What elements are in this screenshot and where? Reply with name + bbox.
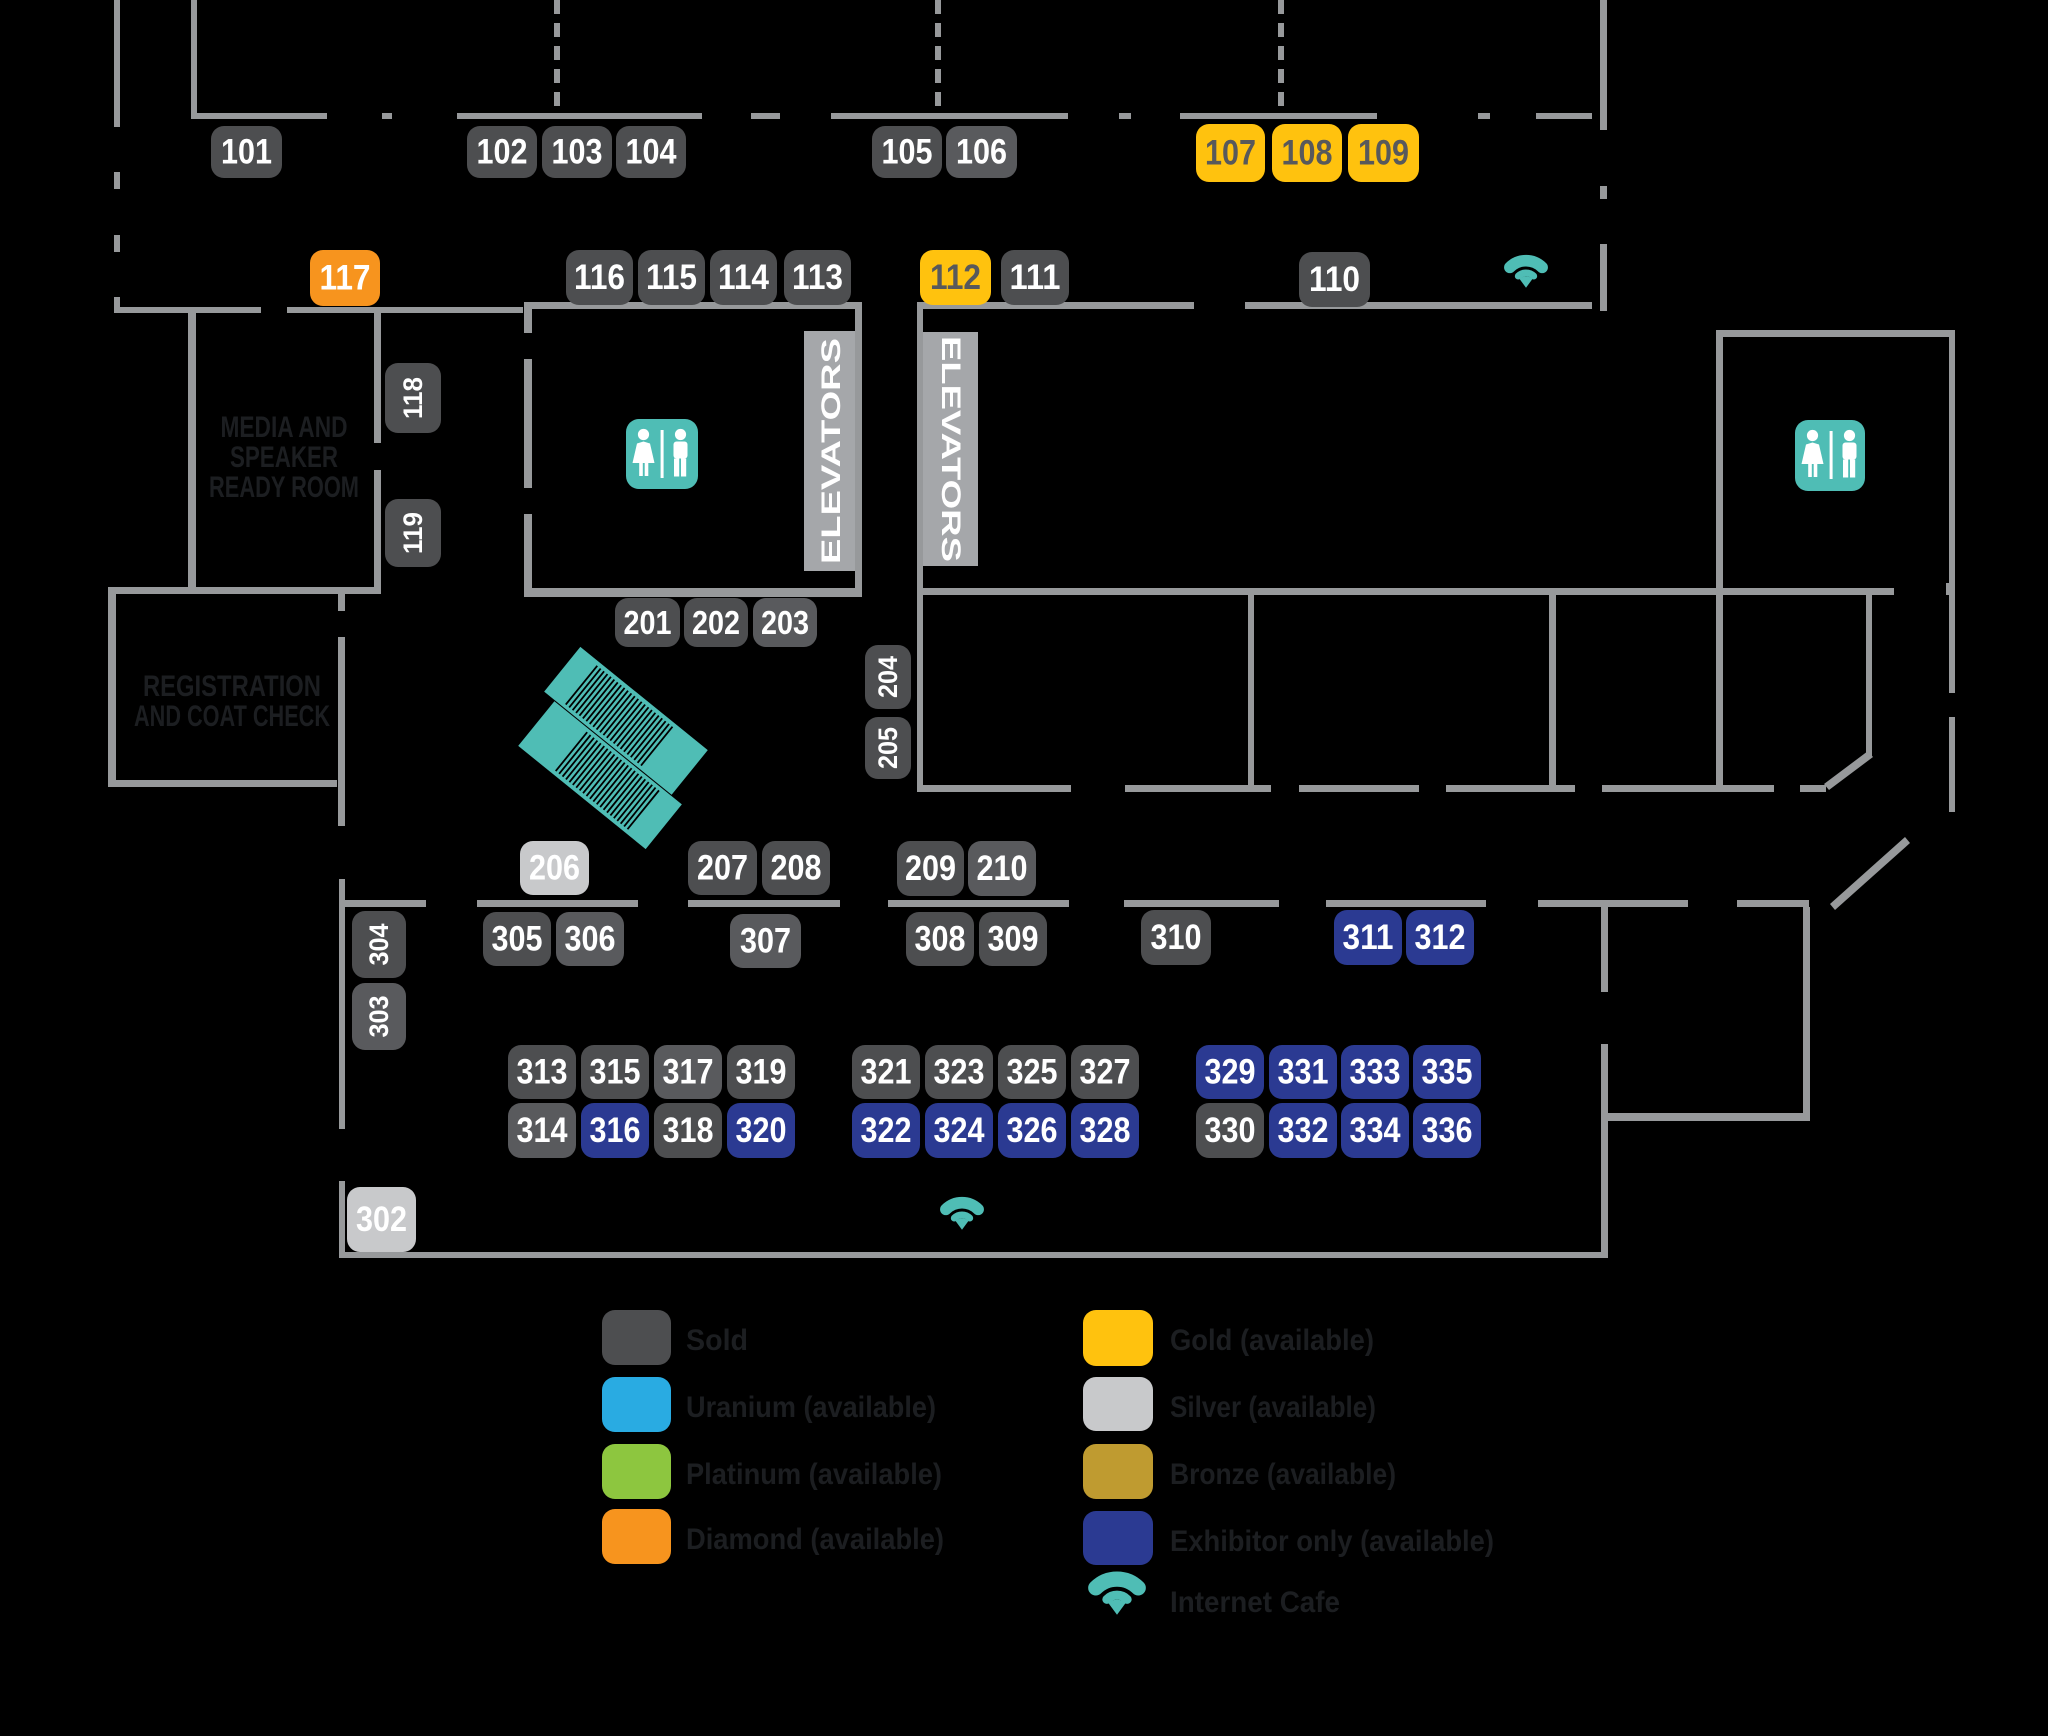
- svg-text:305: 305: [492, 920, 543, 959]
- svg-text:312: 312: [1415, 918, 1466, 957]
- svg-text:309: 309: [988, 920, 1039, 959]
- svg-text:106: 106: [956, 133, 1007, 172]
- svg-text:Diamond (available): Diamond (available): [686, 1523, 944, 1556]
- svg-text:Bronze (available): Bronze (available): [1170, 1458, 1396, 1491]
- svg-text:Silver (available): Silver (available): [1170, 1391, 1376, 1424]
- svg-text:201: 201: [624, 604, 672, 641]
- svg-text:326: 326: [1007, 1111, 1058, 1150]
- svg-text:317: 317: [663, 1053, 714, 1092]
- svg-text:Sold: Sold: [686, 1324, 748, 1357]
- svg-text:104: 104: [626, 133, 677, 172]
- svg-text:303: 303: [364, 996, 394, 1038]
- svg-text:115: 115: [646, 258, 697, 297]
- svg-text:302: 302: [356, 1200, 407, 1239]
- svg-text:101: 101: [221, 133, 272, 172]
- svg-text:313: 313: [517, 1053, 568, 1092]
- svg-text:308: 308: [915, 920, 966, 959]
- svg-text:203: 203: [761, 604, 809, 641]
- svg-text:117: 117: [320, 259, 371, 298]
- svg-text:207: 207: [697, 849, 748, 888]
- svg-text:109: 109: [1358, 134, 1409, 173]
- svg-text:READY ROOM: READY ROOM: [209, 471, 359, 504]
- svg-text:116: 116: [574, 258, 625, 297]
- svg-text:103: 103: [552, 133, 603, 172]
- svg-text:320: 320: [736, 1111, 787, 1150]
- svg-text:323: 323: [934, 1053, 985, 1092]
- svg-text:324: 324: [934, 1111, 985, 1150]
- svg-text:316: 316: [590, 1111, 641, 1150]
- svg-text:113: 113: [792, 258, 843, 297]
- svg-text:209: 209: [905, 849, 956, 888]
- svg-text:105: 105: [882, 133, 933, 172]
- svg-text:107: 107: [1205, 134, 1256, 173]
- svg-text:315: 315: [590, 1053, 641, 1092]
- svg-text:Exhibitor only (available): Exhibitor only (available): [1170, 1525, 1494, 1558]
- svg-text:304: 304: [364, 924, 394, 966]
- svg-text:112: 112: [930, 258, 981, 297]
- svg-text:Internet Cafe: Internet Cafe: [1170, 1586, 1340, 1619]
- svg-text:202: 202: [692, 604, 740, 641]
- svg-text:110: 110: [1309, 260, 1360, 299]
- svg-text:325: 325: [1007, 1053, 1058, 1092]
- svg-text:311: 311: [1343, 918, 1394, 957]
- svg-text:REGISTRATION: REGISTRATION: [143, 670, 321, 703]
- svg-text:329: 329: [1205, 1053, 1256, 1092]
- svg-text:314: 314: [517, 1111, 568, 1150]
- svg-text:208: 208: [771, 849, 822, 888]
- svg-text:328: 328: [1080, 1111, 1131, 1150]
- svg-text:Gold (available): Gold (available): [1170, 1324, 1374, 1357]
- svg-text:307: 307: [740, 922, 791, 961]
- svg-text:321: 321: [861, 1053, 912, 1092]
- svg-text:Uranium (available): Uranium (available): [686, 1391, 936, 1424]
- svg-text:310: 310: [1151, 918, 1202, 957]
- svg-text:118: 118: [398, 377, 428, 419]
- svg-text:336: 336: [1422, 1111, 1473, 1150]
- svg-text:108: 108: [1282, 134, 1333, 173]
- svg-text:333: 333: [1350, 1053, 1401, 1092]
- svg-text:331: 331: [1278, 1053, 1329, 1092]
- svg-text:AND COAT CHECK: AND COAT CHECK: [134, 700, 330, 733]
- svg-text:SPEAKER: SPEAKER: [230, 441, 338, 474]
- svg-text:306: 306: [565, 920, 616, 959]
- svg-text:319: 319: [736, 1053, 787, 1092]
- svg-text:334: 334: [1350, 1111, 1401, 1150]
- svg-text:MEDIA AND: MEDIA AND: [221, 411, 348, 444]
- svg-text:ELEVATORS: ELEVATORS: [816, 338, 846, 564]
- svg-text:335: 335: [1422, 1053, 1473, 1092]
- svg-text:119: 119: [398, 512, 428, 554]
- svg-text:Platinum (available): Platinum (available): [686, 1458, 942, 1491]
- svg-text:204: 204: [873, 656, 903, 698]
- svg-text:210: 210: [977, 849, 1028, 888]
- svg-text:102: 102: [477, 133, 528, 172]
- svg-text:206: 206: [529, 849, 580, 888]
- svg-text:318: 318: [663, 1111, 714, 1150]
- svg-text:322: 322: [861, 1111, 912, 1150]
- svg-text:ELEVATORS: ELEVATORS: [936, 336, 966, 562]
- svg-text:205: 205: [873, 727, 903, 769]
- svg-text:332: 332: [1278, 1111, 1329, 1150]
- svg-text:111: 111: [1010, 258, 1061, 297]
- svg-text:114: 114: [718, 258, 769, 297]
- svg-text:327: 327: [1080, 1053, 1131, 1092]
- svg-text:330: 330: [1205, 1111, 1256, 1150]
